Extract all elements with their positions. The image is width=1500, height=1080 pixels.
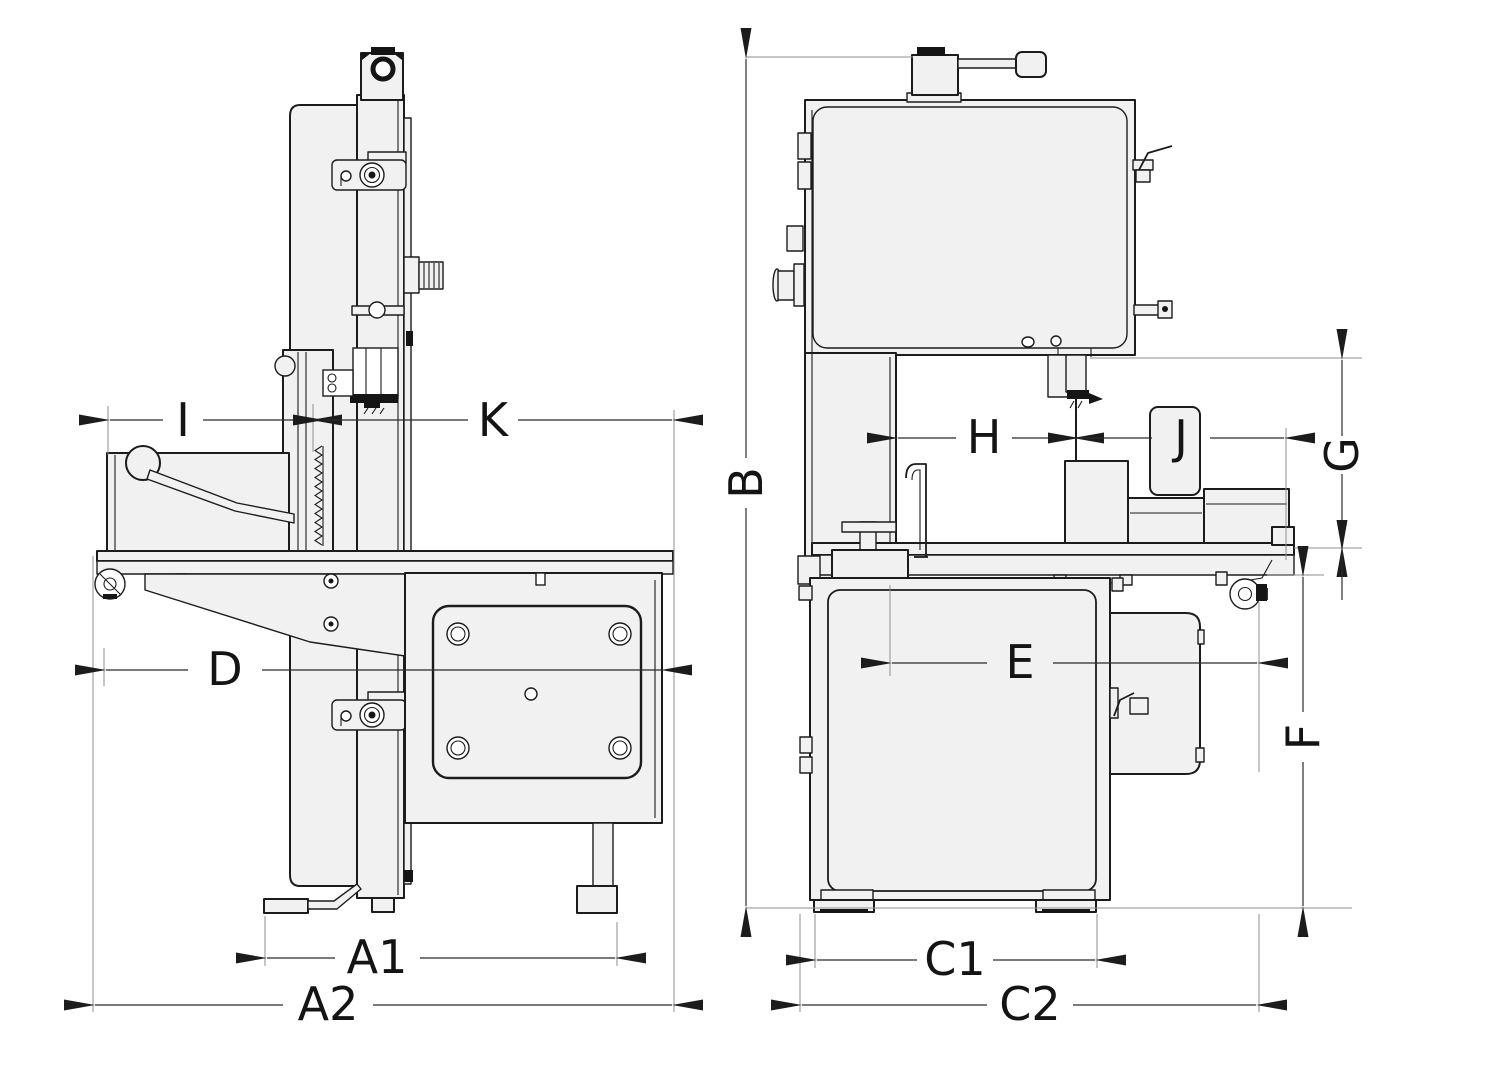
dim-I: I	[110, 393, 311, 447]
drawing-canvas: I K D A1 A2 B H	[0, 0, 1500, 1080]
lifting-eye	[373, 59, 393, 79]
head-housing	[805, 100, 1135, 355]
dim-A2: A2	[95, 977, 672, 1031]
pusher-assembly	[107, 446, 294, 555]
dim-B: B	[719, 59, 773, 906]
dim-label-a1: A1	[347, 930, 408, 984]
dim-label-k: K	[478, 393, 510, 447]
dim-J: J	[1079, 410, 1284, 464]
dim-label-c2: C2	[999, 977, 1060, 1031]
dim-label-a2: A2	[298, 977, 359, 1031]
motor-box	[1108, 613, 1204, 774]
table-support-bracket	[145, 574, 405, 656]
lower-body-side	[404, 573, 662, 882]
head-right-pin	[1134, 301, 1172, 318]
dim-label-b: B	[719, 467, 773, 499]
crank-handle	[907, 47, 1046, 102]
dim-F: F	[1276, 577, 1330, 906]
dim-label-g: G	[1315, 437, 1369, 473]
head-right-latch	[1133, 146, 1172, 182]
guide-bracket	[323, 370, 353, 396]
table-caster-side	[95, 569, 125, 599]
tension-knob	[404, 257, 443, 293]
bandsaw-dimension-drawing: I K D A1 A2 B H	[0, 0, 1500, 1080]
dim-label-h: H	[967, 410, 1002, 464]
front-view	[773, 47, 1294, 913]
dim-A1: A1	[267, 930, 615, 984]
dim-label-c1: C1	[924, 932, 985, 986]
dim-label-e: E	[1005, 635, 1034, 689]
dim-G: G	[1315, 360, 1369, 600]
dim-label-i: I	[176, 393, 190, 447]
side-column	[357, 95, 404, 898]
dim-H: H	[898, 410, 1073, 464]
dim-label-j: J	[1171, 410, 1188, 464]
dim-label-f: F	[1276, 724, 1330, 750]
dim-label-d: D	[207, 642, 242, 696]
side-view	[95, 47, 673, 913]
dim-C2: C2	[802, 977, 1256, 1031]
